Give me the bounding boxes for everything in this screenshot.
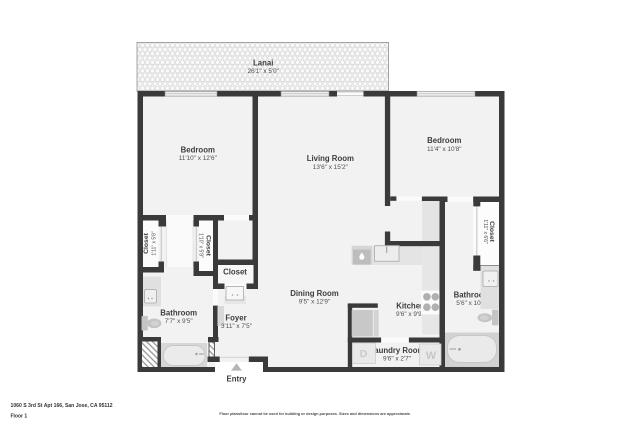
svg-text:3'11" x 7'5": 3'11" x 7'5" — [221, 323, 252, 330]
svg-text:11'4" x 10'8": 11'4" x 10'8" — [427, 146, 462, 153]
svg-text:9'6" x 9'9": 9'6" x 9'9" — [396, 311, 424, 318]
svg-text:Floor 1: Floor 1 — [11, 413, 28, 419]
svg-text:Dining Room: Dining Room — [290, 289, 339, 298]
svg-text:1060 S 3rd St Apt 166, San Jos: 1060 S 3rd St Apt 166, San Jose, CA 9511… — [11, 403, 113, 409]
svg-text:7'7" x 9'5": 7'7" x 9'5" — [165, 318, 193, 325]
svg-text:1'11" x 6'6": 1'11" x 6'6" — [482, 219, 488, 243]
svg-text:Foyer: Foyer — [225, 314, 246, 323]
svg-text:9'6" x 2'7": 9'6" x 2'7" — [383, 356, 411, 363]
svg-text:11'10" x 12'6": 11'10" x 12'6" — [179, 155, 217, 162]
svg-text:Floor plans/tour cannot be use: Floor plans/tour cannot be used for buil… — [219, 412, 411, 416]
svg-text:Bedroom: Bedroom — [181, 146, 215, 155]
svg-text:Laundry Room: Laundry Room — [369, 346, 424, 355]
svg-text:Kitchen: Kitchen — [396, 302, 425, 311]
svg-text:1'10" x 5'8": 1'10" x 5'8" — [198, 233, 204, 258]
svg-text:D: D — [360, 348, 368, 360]
svg-text:Lanai: Lanai — [253, 58, 273, 67]
svg-text:Bedroom: Bedroom — [427, 136, 461, 145]
svg-text:1'11" x 5'8": 1'11" x 5'8" — [152, 231, 158, 255]
svg-text:26'1" x 5'0": 26'1" x 5'0" — [247, 68, 279, 75]
svg-text:Bathroom: Bathroom — [160, 308, 197, 317]
svg-text:Closet: Closet — [205, 235, 212, 257]
svg-text:Entry: Entry — [227, 375, 248, 384]
svg-text:13'6" x 15'2": 13'6" x 15'2" — [313, 164, 348, 171]
svg-text:9'5" x 12'9": 9'5" x 12'9" — [299, 299, 331, 306]
svg-text:Closet: Closet — [223, 267, 247, 276]
svg-text:Living Room: Living Room — [307, 154, 354, 163]
svg-text:Closet: Closet — [143, 232, 150, 254]
svg-text:Closet: Closet — [488, 221, 495, 243]
svg-text:W: W — [426, 350, 437, 362]
